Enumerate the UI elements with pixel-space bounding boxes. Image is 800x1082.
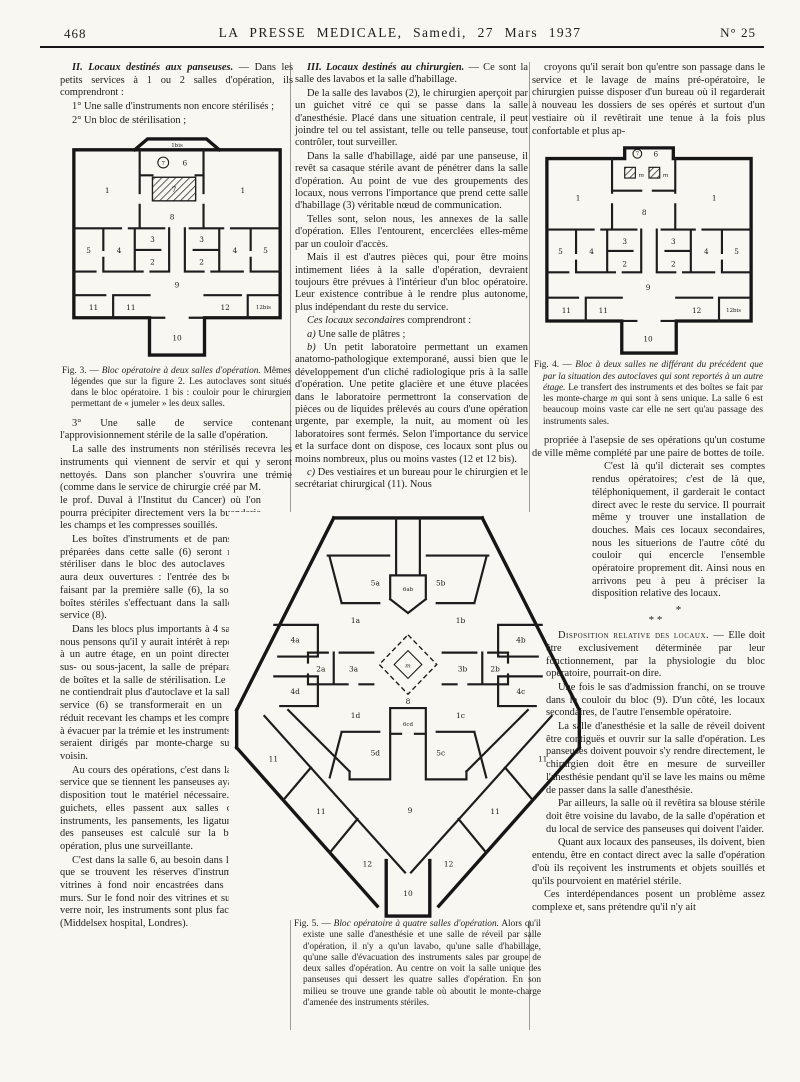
- room-label: 9: [174, 280, 179, 289]
- paragraph: 3° Une salle de service contenant l'appr…: [60, 418, 293, 443]
- paragraph: Ces interdépendances posent un problème …: [532, 889, 765, 914]
- paragraph: Dans la salle d'habillage, aidé par une …: [295, 151, 528, 213]
- monte-charge-label: m: [405, 662, 411, 669]
- room-label: 4c: [516, 687, 525, 696]
- paragraph: Disposition relative des locaux. — Elle …: [532, 630, 765, 681]
- room-label: 3: [622, 237, 627, 246]
- room-label: 12: [363, 860, 372, 869]
- paragraph: II. Locaux destinés aux panseuses. — Dan…: [60, 62, 293, 100]
- room-label: 2: [670, 260, 675, 269]
- paragraph: croyons qu'il serait bon qu'entre son pa…: [532, 62, 765, 138]
- room-label: 12: [220, 302, 229, 311]
- room-label: 4: [232, 245, 237, 254]
- fig4-floor-plan: 7 6 m m 8 1 1 3 3 2 2 4 4 5 5 9 11 11 12…: [538, 144, 760, 356]
- room-label: 4a: [291, 636, 301, 645]
- paragraph: a) Une salle de plâtres ;: [295, 329, 528, 341]
- room-label: 5c: [436, 749, 445, 758]
- fig4-caption: Fig. 4. — Bloc à deux salles ne différan…: [534, 360, 763, 428]
- room-label: 8: [406, 697, 411, 706]
- paragraph: De la salle des lavabos (2), le chirurgi…: [295, 88, 528, 150]
- figure-3: 1bis 7 6 7 8 1 1 3 3 2 2 4 4 5 5 9 11 11…: [60, 134, 293, 362]
- issue-number: N° 25: [720, 25, 756, 41]
- paragraph: Par ailleurs, la salle où il revêtira sa…: [532, 798, 765, 836]
- fig3-floor-plan: 1bis 7 6 7 8 1 1 3 3 2 2 4 4 5 5 9 11 11…: [66, 134, 288, 362]
- room-label: 2: [622, 260, 627, 269]
- room-label: 5: [558, 247, 563, 256]
- room-label: 12: [444, 860, 453, 869]
- paragraph: c) Des vestiaires et un bureau pour le c…: [295, 467, 528, 492]
- paragraph: Mais il est d'autres pièces qui, pour êt…: [295, 252, 528, 314]
- header-rule: [40, 46, 764, 48]
- room-label: 1: [240, 186, 245, 195]
- room-label: 2a: [316, 664, 326, 673]
- monte-charge-label: m: [662, 173, 668, 179]
- room-label: 4d: [290, 687, 300, 696]
- section-lead: III. Locaux destinés au chirurgien.: [307, 62, 464, 73]
- room-label: 1d: [351, 711, 361, 720]
- text-wrap-spacer: [292, 418, 293, 488]
- paragraph: propriée à l'asepsie de ses opérations q…: [532, 435, 765, 460]
- room-label: 11: [269, 755, 278, 764]
- room-label: 7: [171, 185, 176, 194]
- room-label: 5a: [371, 578, 381, 587]
- monte-charge-label: m: [638, 173, 644, 179]
- text-wrap-spacer: [532, 609, 546, 847]
- room-label: 7: [635, 152, 639, 158]
- room-label: 9: [645, 283, 650, 292]
- room-label: 3: [670, 237, 675, 246]
- room-label: 4: [704, 247, 709, 256]
- paragraph: Ces locaux secondaires comprendront :: [295, 315, 528, 327]
- room-label: 9: [408, 806, 413, 815]
- room-label: 3: [150, 235, 155, 244]
- room-label: 11: [598, 306, 607, 315]
- paragraph: b) Un petit laboratoire permettant un ex…: [295, 342, 528, 466]
- room-label: 6: [653, 150, 658, 159]
- paragraph: 1° Une salle d'instruments non encore st…: [60, 101, 293, 114]
- room-label: 5: [734, 247, 739, 256]
- room-label: 1: [575, 194, 580, 203]
- fig5-caption: Fig. 5. — Bloc opératoire à quatre salle…: [294, 919, 541, 1009]
- room-label: 11: [561, 306, 570, 315]
- text-wrap-spacer: [532, 461, 592, 609]
- room-label: 8: [169, 212, 174, 221]
- room-label: 1bis: [171, 142, 183, 148]
- room-label: 3b: [458, 664, 468, 673]
- room-label: 5: [86, 245, 91, 254]
- journal-title: LA PRESSE MEDICALE, Samedi, 27 Mars 1937: [0, 25, 800, 41]
- room-label: 1: [104, 186, 109, 195]
- room-label: 6cd: [403, 722, 414, 728]
- room-label: 1c: [456, 711, 465, 720]
- room-label: 12bis: [726, 308, 741, 314]
- room-label: 2: [199, 257, 204, 266]
- room-label: 1a: [351, 616, 361, 625]
- paragraph: III. Locaux destinés au chirurgien. — Ce…: [295, 62, 528, 87]
- column-3: croyons qu'il serait bon qu'entre son pa…: [532, 62, 765, 916]
- room-label: 12: [692, 306, 701, 315]
- room-label: 6: [182, 158, 187, 167]
- room-label: 8: [641, 208, 646, 217]
- room-label: 1: [711, 194, 716, 203]
- fig3-caption: Fig. 3. — Bloc opératoire à deux salles …: [62, 366, 291, 411]
- figure-4: 7 6 m m 8 1 1 3 3 2 2 4 4 5 5 9 11 11 12…: [532, 144, 765, 356]
- room-label: 2b: [490, 664, 500, 673]
- section-lead: Disposition relative des locaux. —: [558, 630, 728, 641]
- column-2: III. Locaux destinés au chirurgien. — Ce…: [295, 62, 528, 493]
- room-label: 10: [643, 335, 653, 344]
- room-label: 5d: [371, 749, 381, 758]
- room-label: 4b: [516, 636, 526, 645]
- room-label: 6ab: [403, 587, 414, 593]
- monte-charge-hatched: [649, 168, 660, 179]
- section-lead: II. Locaux destinés aux panseuses.: [72, 62, 233, 73]
- room-label: 1b: [456, 616, 466, 625]
- room-label: 11: [490, 807, 499, 816]
- room-label: 4: [116, 245, 121, 254]
- paragraph: Telles sont, selon nous, les annexes de …: [295, 214, 528, 251]
- paragraph: Une fois le sas d'admission franchi, on …: [532, 682, 765, 720]
- room-label: 11: [316, 807, 325, 816]
- room-label: 10: [403, 889, 413, 898]
- room-label: 4: [589, 247, 594, 256]
- monte-charge-hatched: [624, 168, 635, 179]
- room-label: 12bis: [255, 304, 270, 310]
- room-label: 5b: [436, 578, 446, 587]
- paragraph: Quant aux locaux des panseuses, ils doiv…: [532, 837, 765, 888]
- room-label: 11: [126, 302, 135, 311]
- paragraph: La salle d'anesthésie et la salle de rév…: [532, 721, 765, 797]
- room-label: 3a: [349, 664, 359, 673]
- room-label: 3: [199, 235, 204, 244]
- room-label: 7: [161, 161, 165, 167]
- room-label: 10: [172, 333, 182, 342]
- room-label: 2: [150, 257, 155, 266]
- room-label: 11: [88, 302, 97, 311]
- room-label: 5: [263, 245, 268, 254]
- paragraph: 2° Un bloc de stérilisation ;: [60, 115, 293, 128]
